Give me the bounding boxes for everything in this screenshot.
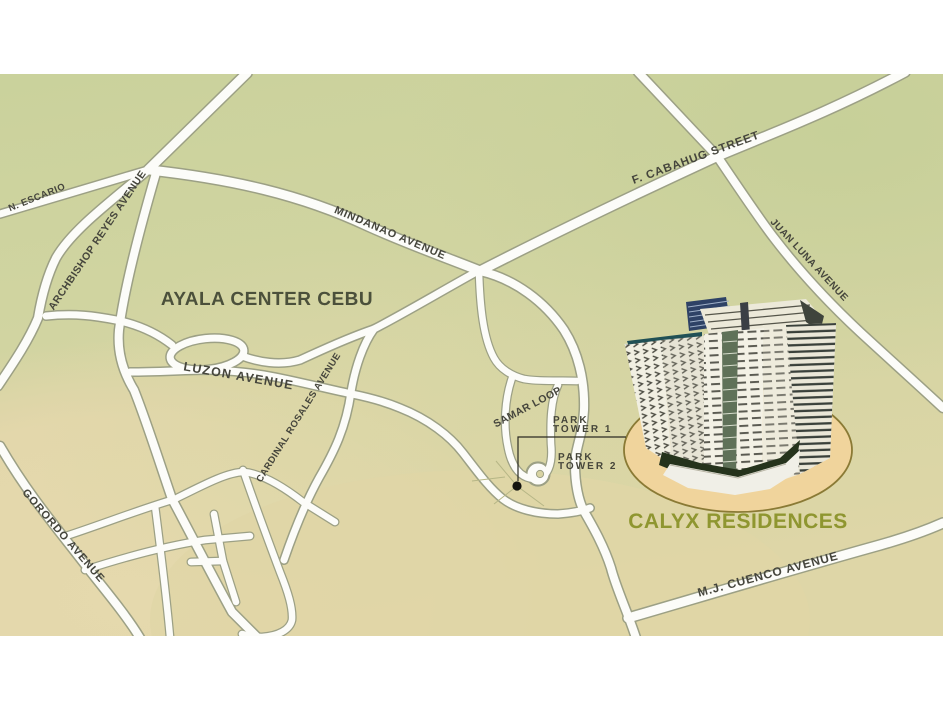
svg-text:TOWER 2: TOWER 2 xyxy=(558,461,617,472)
svg-text:TOWER 1: TOWER 1 xyxy=(553,424,612,435)
svg-text:CALYX RESIDENCES: CALYX RESIDENCES xyxy=(628,510,848,533)
svg-text:AYALA CENTER CEBU: AYALA CENTER CEBU xyxy=(161,289,373,310)
